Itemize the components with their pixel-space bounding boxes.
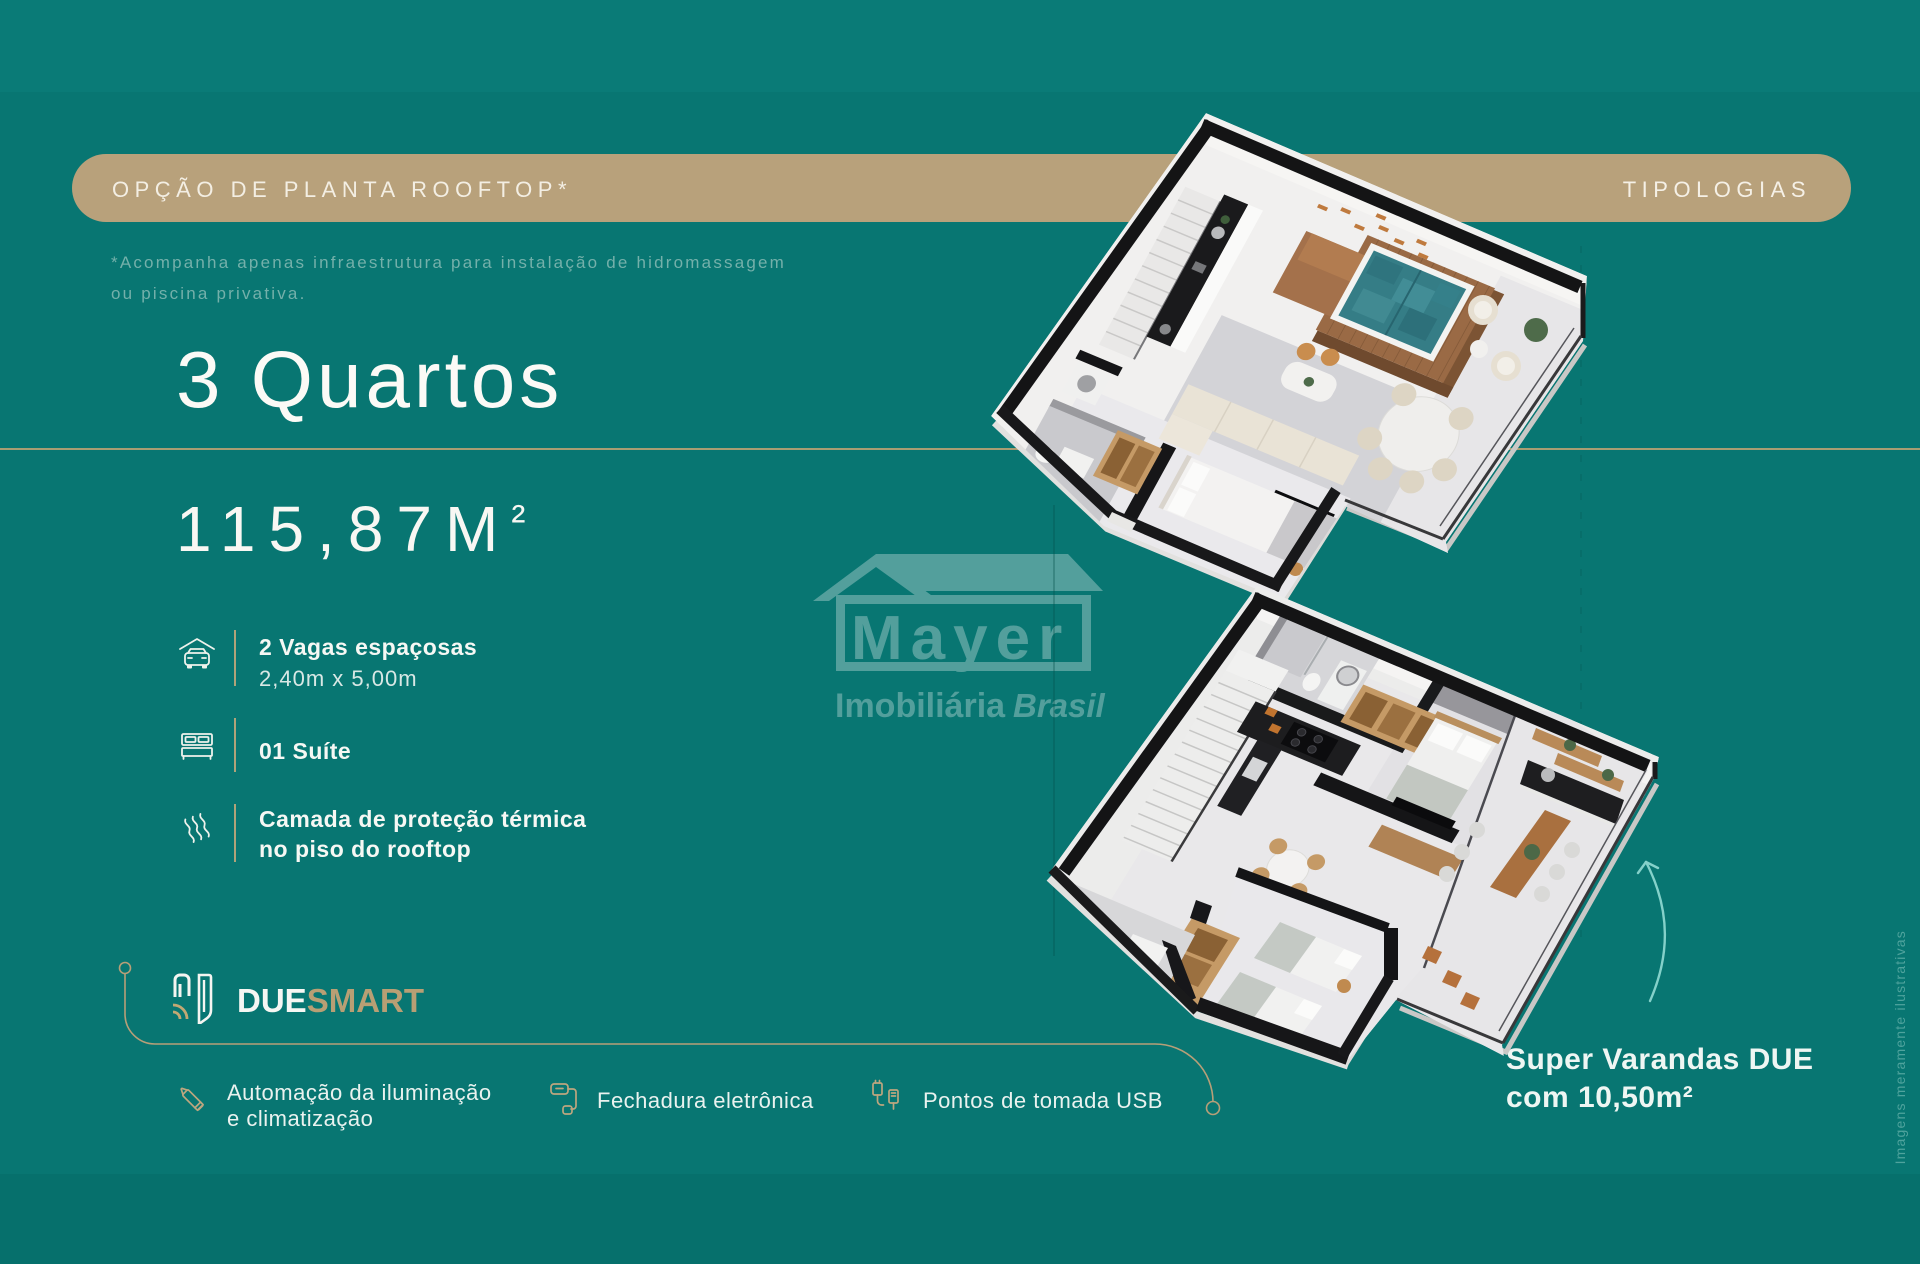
svg-text:Mayer: Mayer xyxy=(851,604,1070,673)
svg-text:Imobiliária: Imobiliária xyxy=(835,687,1006,725)
svg-text:Brasil: Brasil xyxy=(1013,687,1106,724)
